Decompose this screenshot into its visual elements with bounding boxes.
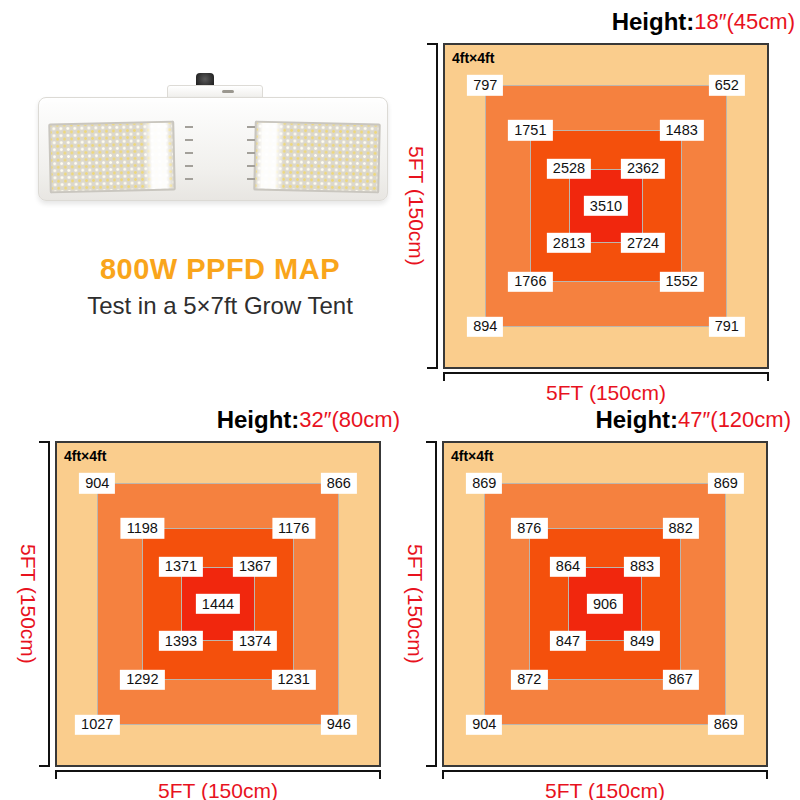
y-axis-dimension-bracket: [427, 43, 438, 369]
vent-slots-right: [247, 126, 255, 182]
ppfd-value: 869: [466, 473, 502, 493]
ppfd-value: 1367: [233, 557, 277, 577]
y-axis-dimension-bracket: [426, 441, 437, 767]
ppfd-value: 869: [708, 715, 744, 735]
area-size-label: 4ft×4ft: [64, 448, 106, 464]
ppfd-value: 904: [79, 473, 115, 493]
x-axis-dimension-bracket: [55, 770, 381, 779]
ppfd-value: 1198: [121, 518, 164, 538]
ppfd-value: 847: [550, 631, 586, 651]
ppfd-map-section-47in: Height:47″(120cm) 5FT (150cm) 4ft×4ft 86…: [404, 398, 796, 800]
ppfd-map-infographic: 800W PPFD MAP Test in a 5×7ft Grow Tent …: [0, 0, 800, 800]
y-axis-dimension-bracket: [39, 441, 50, 767]
ppfd-value: 2362: [621, 159, 665, 179]
ppfd-heatmap-18in: 4ft×4ft 797 652 894 791 1751 1483 1766 1…: [443, 43, 769, 369]
area-size-label: 4ft×4ft: [451, 448, 493, 464]
ppfd-map-section-18in: Height:18″(45cm) 5FT (150cm) 4ft×4ft 797…: [405, 0, 800, 405]
ppfd-value: 2724: [621, 233, 665, 253]
x-axis-label: 5FT (150cm): [442, 779, 768, 800]
y-axis-label: 5FT (150cm): [403, 544, 427, 664]
map-heading: Height:47″(120cm): [404, 398, 796, 441]
ppfd-value: 1371: [159, 557, 203, 577]
product-subtitle: Test in a 5×7ft Grow Tent: [10, 292, 430, 320]
ppfd-value: 1374: [233, 631, 277, 651]
ppfd-value: 1176: [272, 518, 315, 538]
ppfd-value: 797: [467, 75, 503, 95]
ppfd-value-center: 906: [587, 594, 623, 614]
y-axis-label: 5FT (150cm): [16, 544, 40, 664]
vent-slots-left: [185, 126, 193, 182]
led-grow-light-image: [38, 97, 388, 201]
map-heading: Height:32″(80cm): [17, 398, 405, 441]
height-value: 18″(45cm): [694, 9, 795, 35]
map-heading: Height:18″(45cm): [405, 0, 800, 43]
ppfd-value: 872: [511, 669, 547, 689]
ppfd-value: 876: [511, 518, 547, 538]
product-title: 800W PPFD MAP: [10, 253, 430, 286]
ppfd-value: 866: [321, 473, 357, 493]
ppfd-value: 1751: [508, 120, 552, 140]
ppfd-heatmap-47in: 4ft×4ft 869 869 904 869 876 882 872 867 …: [442, 441, 768, 767]
ppfd-value: 1552: [660, 271, 704, 291]
ppfd-value: 1292: [120, 669, 164, 689]
ppfd-map-section-32in: Height:32″(80cm) 5FT (150cm) 4ft×4ft 904…: [17, 398, 405, 800]
height-value: 32″(80cm): [299, 407, 400, 433]
height-label: Height:: [595, 406, 678, 434]
ppfd-value: 864: [550, 557, 586, 577]
height-value: 47″(120cm): [678, 407, 791, 433]
x-axis-label: 5FT (150cm): [55, 779, 381, 800]
ppfd-value: 791: [709, 317, 745, 337]
ppfd-value: 1393: [159, 631, 203, 651]
ppfd-value: 869: [708, 473, 744, 493]
height-label: Height:: [612, 8, 695, 36]
ppfd-value: 1483: [660, 120, 704, 140]
ppfd-value: 2528: [547, 159, 591, 179]
ppfd-value: 894: [467, 317, 503, 337]
x-axis-dimension-bracket: [443, 372, 769, 381]
ppfd-value: 2813: [547, 233, 591, 253]
ppfd-value: 883: [624, 557, 660, 577]
y-axis-label-column: 5FT (150cm): [17, 441, 39, 767]
product-image-section: 800W PPFD MAP Test in a 5×7ft Grow Tent: [10, 45, 430, 375]
y-axis-label-column: 5FT (150cm): [404, 441, 426, 767]
ppfd-value: 904: [466, 715, 502, 735]
ppfd-value: 1231: [272, 669, 316, 689]
led-panel-right: [253, 121, 381, 194]
ppfd-value: 1027: [75, 715, 119, 735]
ppfd-value-center: 3510: [584, 196, 628, 216]
ppfd-value: 946: [321, 715, 357, 735]
y-axis-label: 5FT (150cm): [404, 146, 428, 266]
ppfd-value: 849: [624, 631, 660, 651]
ppfd-heatmap-32in: 4ft×4ft 904 866 1027 946 1198 1176 1292 …: [55, 441, 381, 767]
area-size-label: 4ft×4ft: [452, 50, 494, 66]
housing-vent-slot: [222, 90, 234, 93]
ppfd-value-center: 1444: [196, 594, 240, 614]
height-label: Height:: [217, 406, 300, 434]
y-axis-label-column: 5FT (150cm): [405, 43, 427, 369]
ppfd-value: 867: [663, 669, 699, 689]
ppfd-value: 1766: [508, 271, 552, 291]
led-panel-left: [48, 121, 176, 194]
ppfd-value: 652: [709, 75, 745, 95]
ppfd-value: 882: [663, 518, 699, 538]
x-axis-dimension-bracket: [442, 770, 768, 779]
